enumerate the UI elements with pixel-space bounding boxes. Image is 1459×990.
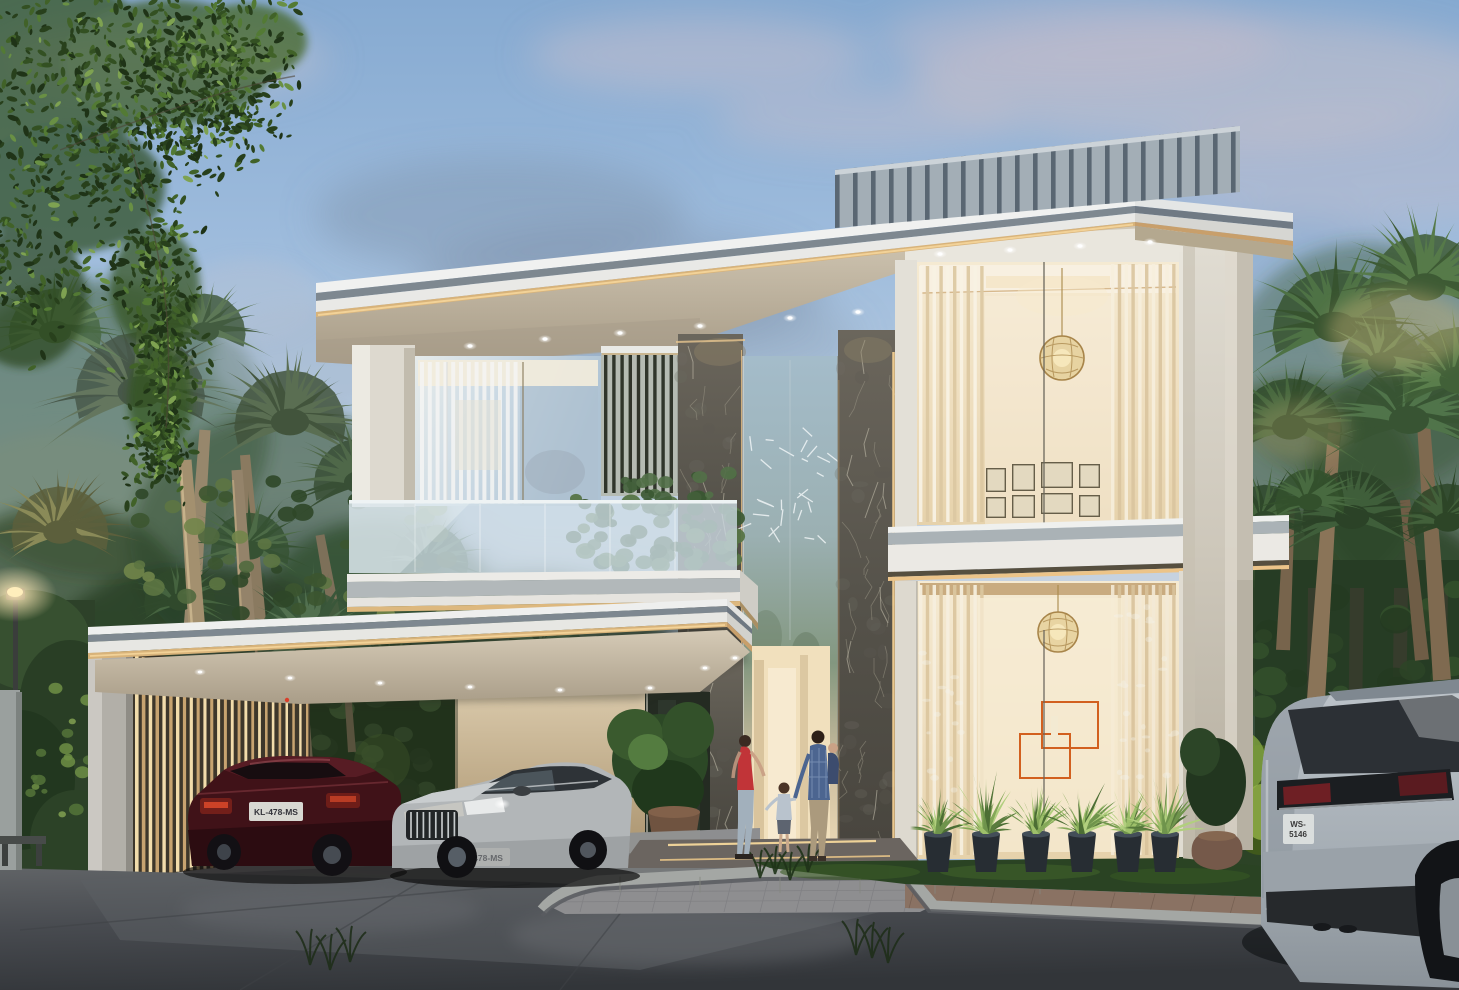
svg-text:KL-478-MS: KL-478-MS bbox=[254, 807, 298, 817]
svg-text:WS-: WS- bbox=[1290, 820, 1306, 829]
svg-text:5146: 5146 bbox=[1289, 830, 1307, 839]
